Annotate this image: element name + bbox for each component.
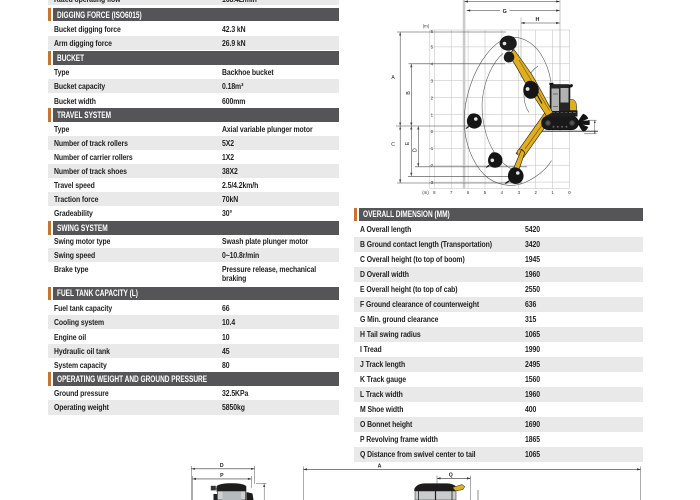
svg-text:5: 5 xyxy=(431,45,434,50)
svg-text:-1: -1 xyxy=(429,146,433,151)
svg-text:8: 8 xyxy=(433,190,436,195)
svg-text:D: D xyxy=(220,463,224,469)
svg-text:4: 4 xyxy=(501,190,504,195)
svg-text:E: E xyxy=(405,141,411,145)
svg-text:Q: Q xyxy=(449,472,453,478)
svg-text:A: A xyxy=(378,463,382,469)
svg-text:0: 0 xyxy=(431,129,434,134)
svg-text:4: 4 xyxy=(431,62,434,67)
svg-text:6: 6 xyxy=(467,190,470,195)
svg-text:(m): (m) xyxy=(423,24,430,29)
svg-text:3: 3 xyxy=(431,79,434,84)
svg-text:5: 5 xyxy=(484,190,487,195)
svg-text:-3: -3 xyxy=(429,180,433,185)
svg-text:C: C xyxy=(391,142,395,148)
svg-text:H: H xyxy=(536,17,540,23)
svg-text:1: 1 xyxy=(551,190,554,195)
svg-text:0: 0 xyxy=(568,190,571,195)
svg-text:G: G xyxy=(503,9,507,15)
svg-text:-2: -2 xyxy=(429,163,433,168)
svg-text:3: 3 xyxy=(518,190,521,195)
svg-text:B: B xyxy=(406,91,412,95)
svg-text:D: D xyxy=(412,148,418,152)
svg-text:7: 7 xyxy=(450,190,453,195)
svg-text:A: A xyxy=(391,75,395,81)
svg-text:(m): (m) xyxy=(422,190,429,195)
svg-text:2: 2 xyxy=(534,190,537,195)
svg-text:2: 2 xyxy=(431,95,434,100)
svg-text:P: P xyxy=(220,473,224,479)
svg-text:1: 1 xyxy=(431,112,434,117)
